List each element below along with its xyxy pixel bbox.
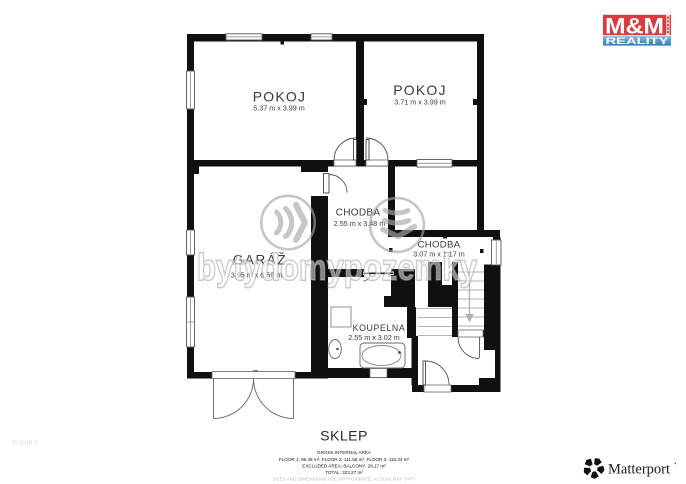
svg-text:FLOOR 1: 96.48 m², FLOOR 2: 11: FLOOR 1: 96.48 m², FLOOR 2: 111.55 m², F… [279,457,410,462]
svg-text:3.71 m x 3.99 m: 3.71 m x 3.99 m [394,97,446,106]
svg-text:2.55 m x 3.48 m: 2.55 m x 3.48 m [334,219,386,228]
svg-text:KOUPELNA: KOUPELNA [353,323,406,333]
svg-text:SKLEP: SKLEP [320,428,368,444]
svg-text:TOTAL: 323.27 m²: TOTAL: 323.27 m² [325,470,363,475]
svg-text:GROSS INTERNAL AREA: GROSS INTERNAL AREA [317,450,372,455]
svg-text:POKOJ: POKOJ [253,89,306,105]
svg-text:5.37 m x 3.99 m: 5.37 m x 3.99 m [253,104,305,113]
svg-text:FLOOR 1: FLOOR 1 [13,441,38,447]
svg-text:REALITY: REALITY [606,36,669,46]
svg-text:EXCLUDED AREA: BALCONY: 28.17: EXCLUDED AREA: BALCONY: 28.17 m² [302,463,386,468]
svg-text:2.55 m x 3.02 m: 2.55 m x 3.02 m [348,333,400,342]
svg-text:POKOJ: POKOJ [393,82,446,98]
svg-text:SIZES AND DIMENSIONS ARE APPRO: SIZES AND DIMENSIONS ARE APPROXIMATE, AC… [272,476,415,481]
svg-text:M&M: M&M [605,14,664,39]
svg-text:bytydomypozemky: bytydomypozemky [197,246,477,288]
svg-text:Matterport: Matterport [608,462,670,478]
